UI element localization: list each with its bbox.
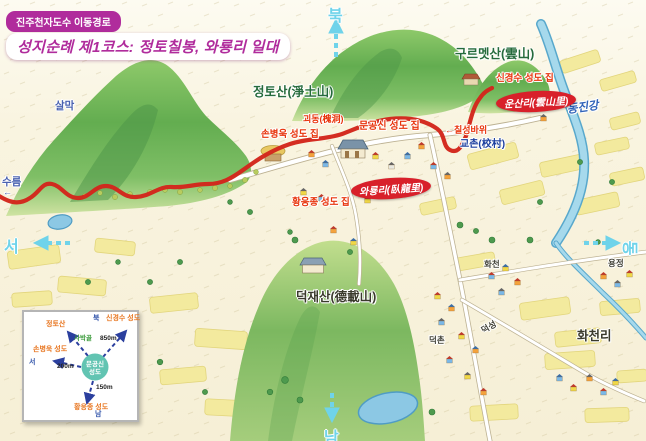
inset-north-label: 북 (93, 315, 99, 322)
inset-sabakgol-label: 사박골 (74, 336, 92, 343)
map-canvas: 북 남 서 동 살막 수름 ← 정토산(淨土山) 구르멧산(雲山) 덕재산(德載… (0, 0, 646, 441)
inset-hwangeungjong-label: 황응종 성도 (74, 404, 108, 411)
title-subtitle: 진주천자도수 이동경로 (6, 11, 121, 32)
compass-north-label: 북 (328, 2, 343, 26)
label-gureumetsan: 구르멧산(雲山) (455, 48, 534, 61)
inset-s-distance: 150m (96, 385, 113, 392)
label-jeongtosan: 정토산(淨土山) (253, 86, 333, 99)
inset-south-label: 남 (95, 411, 101, 418)
label-hwacheon: 화천 (484, 260, 500, 269)
inset-ne-distance: 850m (100, 336, 117, 343)
label-deokchon: 덕촌 (429, 336, 445, 345)
label-mungongsin-house: 문공신 성도 집 (359, 122, 420, 132)
inset-w-distance: 200m (57, 364, 74, 371)
compass-west-label: 서 (4, 233, 19, 257)
inset-jeongtosan-label: 정토산 (46, 321, 65, 328)
label-hwacheonri: 화천리 (577, 330, 612, 343)
label-deokjaesan: 덕재산(德載山) (296, 291, 376, 304)
inset-singyeongsu-label: 신경수 성도 (106, 315, 140, 322)
label-salmak: 살막 (55, 101, 74, 112)
inset-west-label: 서 (29, 359, 35, 366)
label-gyochon: 교촌(校村) (460, 140, 505, 150)
inset-distance-diagram: 문공신 성도 북 남 서 정토산 사박골 신경수 성도 850m 손병욱 성도 … (22, 310, 139, 422)
label-hwangeungjong-house: 황응종 성도 집 (292, 198, 350, 208)
compass-east-label: 동 (619, 241, 643, 256)
compass-south-label: 남 (324, 424, 339, 441)
inset-center-suffix: 성도 (89, 367, 101, 376)
label-goedong: 괴동(槐洞) (303, 115, 344, 124)
chilseongbawi-left-arrow-icon: ← (445, 125, 454, 135)
label-chilseongbawi: ←칠성바위 (445, 126, 487, 135)
label-sonbyeonguk-house: 손병욱 성도 집 (261, 130, 319, 140)
inset-center-name: 문공신 (86, 359, 104, 368)
title-block: 진주천자도수 이동경로 성지순례 제1코스: 정토칠봉, 와룡리 일대 (6, 11, 290, 60)
label-singyeongsu-house: 신경수 성도 집 (496, 74, 554, 84)
inset-sonbyeonguk-label: 손병욱 성도 (33, 346, 67, 353)
label-sureum: 수름 (2, 177, 21, 188)
sureum-left-arrow-icon: ← (3, 188, 12, 197)
title-main: 성지순례 제1코스: 정토칠봉, 와룡리 일대 (6, 33, 290, 60)
label-yongjeong: 용정 (608, 259, 624, 268)
chilseongbawi-text: 칠성바위 (454, 125, 487, 135)
inset-s-arrow-icon (87, 381, 93, 403)
